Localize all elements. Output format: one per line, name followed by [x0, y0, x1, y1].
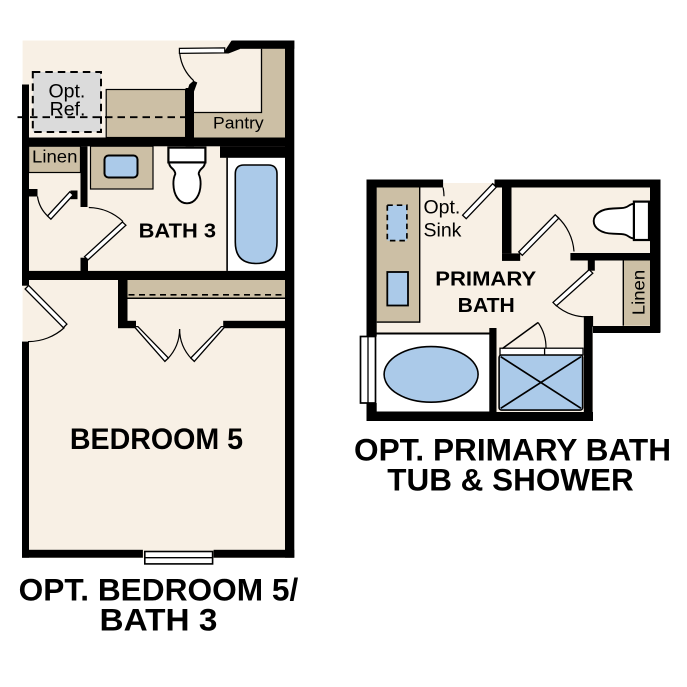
svg-text:BATH: BATH: [458, 294, 515, 317]
svg-text:Linen: Linen: [32, 147, 78, 167]
svg-text:BATH 3: BATH 3: [100, 602, 218, 638]
svg-text:Opt.: Opt.: [424, 197, 461, 219]
svg-text:Linen: Linen: [629, 270, 649, 315]
svg-text:TUB & SHOWER: TUB & SHOWER: [387, 461, 634, 497]
svg-text:PRIMARY: PRIMARY: [435, 267, 536, 290]
svg-text:BEDROOM 5: BEDROOM 5: [70, 423, 243, 456]
svg-text:Pantry: Pantry: [213, 113, 264, 132]
svg-text:BATH 3: BATH 3: [139, 220, 216, 243]
svg-text:Sink: Sink: [424, 220, 462, 242]
